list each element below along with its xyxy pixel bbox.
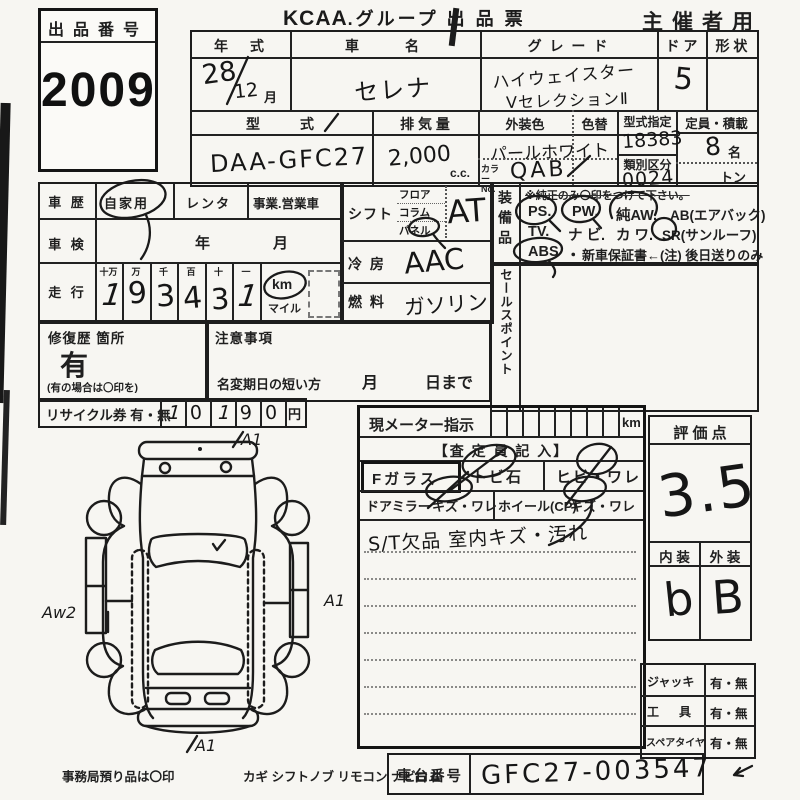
equipment-item-ps: PS. xyxy=(528,204,551,220)
row1-vline xyxy=(543,461,545,490)
history-option-commercial: 事業.営業車 xyxy=(253,193,319,212)
sliding-door-right xyxy=(248,550,264,708)
spare-tire-value: 有・無 xyxy=(710,733,748,752)
scan-edge-artifact-left xyxy=(0,103,11,403)
exterior-label: 外 装 xyxy=(700,546,750,566)
front-washer-right xyxy=(221,462,231,472)
mileage-unit-km: km xyxy=(272,276,292,292)
meter-box: 現メーター指示 km 【査 定 員 記 入】 Fガラス トビ石 ヒビ・ワレ ドア… xyxy=(357,405,646,749)
left-fender-outline xyxy=(103,478,144,714)
stone-chip-label: トビ石 xyxy=(472,466,523,487)
door-label: ド ア xyxy=(657,36,706,56)
interior-value: b xyxy=(661,571,696,628)
capacity-divider xyxy=(676,162,757,164)
mileage-digit: 9 xyxy=(127,275,148,311)
type-designation-value: 18383 xyxy=(621,127,683,153)
row1-bottom xyxy=(360,490,643,492)
controls-box: シフト フロア コラム パネル AT 冷 房 AAC 燃 料 ガソリン xyxy=(340,182,494,324)
lot-number-label: 出品番号 xyxy=(41,16,155,40)
crack-label: ヒビ・ワレ xyxy=(556,466,641,487)
tools-label: 工 具 xyxy=(647,703,695,720)
taillight-left xyxy=(166,693,190,704)
color-no-value: QAB xyxy=(509,157,567,185)
meter-unit: km xyxy=(622,415,641,430)
lt-row-divider xyxy=(40,262,342,264)
diagram-annotation-top: A1 xyxy=(240,430,262,449)
history-option-rental: レンタ xyxy=(186,193,231,212)
controls-divider xyxy=(342,282,492,284)
rating-value: 3.5 xyxy=(654,450,761,531)
accessories-box: ジャッキ 有・無 工 具 有・無 スペアタイヤ 有・無 xyxy=(640,663,756,759)
right-fender-outline xyxy=(252,478,293,714)
note-dotline xyxy=(364,551,636,553)
wheel-label: ホイール(CP) xyxy=(498,496,577,515)
shift-value: AT xyxy=(446,191,488,232)
shift-option-panel: パネル xyxy=(397,222,445,239)
auction-sheet: 出品番号 2009 KCAA.グループ 出 品 票 主催者用 年 式 車 名 グ… xyxy=(0,0,800,800)
name-label: 車 名 xyxy=(290,36,480,56)
hand-dot-top xyxy=(198,447,202,451)
repair-note: (有の場合は〇印を) xyxy=(47,380,138,395)
history-mileage-table: 車 歴 自家用 レンタ 事業.営業車 車 検 年 月 走 行 十万 万 千 百 … xyxy=(38,182,344,324)
lt-vline xyxy=(95,184,97,322)
displacement-unit: c.c. xyxy=(450,166,470,180)
meter-cell xyxy=(538,408,540,436)
equipment-item-tv: TV. xyxy=(528,224,549,240)
rename-day-label: 日まで xyxy=(425,369,473,393)
inspection-year-label: 年 xyxy=(195,232,210,253)
aircon-label: 冷 房 xyxy=(348,254,386,274)
year-month-value: 12 xyxy=(233,79,259,103)
mirror-scratch-label: キズ・ワレ xyxy=(432,496,497,515)
lt-row-divider xyxy=(40,218,342,220)
jack-value: 有・無 xyxy=(710,673,748,692)
lt-vline xyxy=(247,184,249,218)
sales-point-label: セールスポイント xyxy=(496,268,515,376)
model-value: DAA-GFC27 xyxy=(209,142,369,178)
mileage-digit: 1 xyxy=(232,279,262,314)
door-value: 5 xyxy=(672,61,695,98)
sheet-title: KCAA.グループ 出 品 票 xyxy=(283,5,526,31)
year-label: 年 式 xyxy=(192,36,290,56)
diagram-annotation-bottom: A1 xyxy=(194,736,216,755)
rating-box: 評 価 点 3.5 内 装 外 装 b B xyxy=(648,415,752,641)
capacity-value: 8 xyxy=(704,131,722,161)
mileage-place-100k: 十万 xyxy=(95,265,122,278)
equipment-box: 装備品 ※純正のみ〇印をつけて下さい。 PS. PW. 純AW. AB(エアバッ… xyxy=(490,182,759,266)
rename-month-label: 月 xyxy=(362,369,378,393)
mileage-unit-mile: マイル xyxy=(268,300,301,316)
grade-line2: VセレクションⅡ xyxy=(506,85,630,113)
body-side-left xyxy=(140,476,153,718)
note-dotline xyxy=(364,578,636,580)
fglass-cell: Fガラス xyxy=(361,461,461,493)
mileage-label: 走 行 xyxy=(40,282,95,301)
sales-point-box: セールスポイント xyxy=(490,262,759,412)
fuel-label: 燃 料 xyxy=(348,292,386,312)
mileage-digit: 3 xyxy=(210,282,230,317)
sales-point-divider xyxy=(519,264,521,410)
repair-history-box: 修復歴 箇所 有 (有の場合は〇印を) xyxy=(38,320,209,402)
equipment-item-pw: PW. xyxy=(572,204,599,220)
equipment-label: 装備品 xyxy=(495,190,515,250)
note-dotline xyxy=(364,659,636,661)
meter-cell xyxy=(586,408,588,436)
equipment-item-leather: カ ワ. xyxy=(616,224,653,245)
meter-cell xyxy=(602,408,604,436)
taillight-right xyxy=(205,693,229,704)
shift-option-floor: フロア xyxy=(397,186,445,204)
equipment-item-aw: 純AW. xyxy=(616,204,657,225)
meter-cell xyxy=(570,408,572,436)
note-dotline xyxy=(364,632,636,634)
year-month-suffix: 月 xyxy=(264,87,277,106)
shift-label: シフト xyxy=(348,204,393,224)
table-row-divider xyxy=(192,110,757,112)
windshield xyxy=(149,534,247,567)
lt-vline xyxy=(173,184,175,218)
shift-options-cell: フロア コラム パネル xyxy=(397,186,447,238)
acc-row-line xyxy=(642,725,754,727)
note-dotline xyxy=(364,605,636,607)
meter-cell xyxy=(522,408,524,436)
rating-label: 評 価 点 xyxy=(650,422,750,443)
lot-number-value: 2009 xyxy=(41,63,155,118)
acc-row-line xyxy=(642,695,754,697)
color-change-label: 色替 xyxy=(572,114,617,133)
ext-color-label: 外装色 xyxy=(478,114,572,133)
rename-deadline-label: 名変期日の短い方 xyxy=(217,374,321,393)
equipment-item-sr: SR(サンルーフ) xyxy=(662,224,756,244)
history-label: 車 歴 xyxy=(40,192,95,211)
vehicle-table: 年 式 車 名 グ レ ー ド ド ア 形 状 28 12 月 セレナ ハイウェ… xyxy=(190,30,759,187)
meter-cell xyxy=(506,408,508,436)
mileage-spare-box xyxy=(308,270,340,318)
meter-label: 現メーター指示 xyxy=(369,414,474,435)
wheel-scratch-label: キズ・ワレ xyxy=(570,496,635,515)
note-dotline xyxy=(364,713,636,715)
rear-window xyxy=(152,642,244,674)
grade-label: グ レ ー ド xyxy=(480,36,657,56)
body-side-right xyxy=(243,476,256,718)
lot-header-divider xyxy=(41,41,155,43)
sheet-title-brand: KCAA xyxy=(283,7,348,30)
note-dotline xyxy=(364,686,636,688)
capacity-label: 定員・積載 xyxy=(676,113,757,132)
mileage-digit: 3 xyxy=(155,279,176,315)
mileage-place-1: 一 xyxy=(232,265,260,278)
fuel-value: ガソリン xyxy=(403,286,489,322)
row2-bottom xyxy=(360,519,643,521)
wheel-front-right xyxy=(275,501,309,535)
exterior-value: B xyxy=(710,569,745,625)
diagram-annotation-left: Aw2 xyxy=(41,603,76,622)
meter-header-divider xyxy=(360,436,643,438)
inspection-month-label: 月 xyxy=(273,232,288,253)
front-bumper xyxy=(139,442,257,459)
lt-vline xyxy=(260,262,262,322)
assessor-label: 【査 定 員 記 入】 xyxy=(360,441,643,461)
caution-box: 注意事項 名変期日の短い方 月 日まで xyxy=(205,320,491,402)
mileage-place-1k: 千 xyxy=(150,265,177,278)
fglass-label: Fガラス xyxy=(372,468,438,489)
interior-label: 内 装 xyxy=(650,546,699,566)
mileage-digit: 4 xyxy=(182,280,204,317)
chassis-arrow xyxy=(734,766,752,776)
equipment-note: ※純正のみ〇印をつけて下さい。 xyxy=(525,187,690,203)
repair-value: 有 xyxy=(60,344,88,384)
displacement-value: 2,000 xyxy=(387,141,452,171)
meter-cell xyxy=(618,408,620,436)
equipment-label-divider xyxy=(519,184,521,264)
equipment-item-ab: AB(エアバック) xyxy=(670,204,765,224)
inspection-checkmark xyxy=(213,540,225,550)
equipment-item-abs: ABS xyxy=(528,244,559,260)
name-value: セレナ xyxy=(353,67,433,107)
meter-cell xyxy=(490,408,492,436)
deposit-items: カギ シフトノブ リモコン ナビロム xyxy=(243,766,441,785)
capacity-unit: 名 xyxy=(728,142,741,161)
rating-sub-line xyxy=(650,565,750,567)
rear-bumper xyxy=(138,709,258,726)
equipment-item-navi: ナ ビ. xyxy=(568,224,605,245)
diagram-annotation-right: A1 xyxy=(323,591,345,610)
lot-number-box: 出品番号 2009 xyxy=(38,8,158,172)
row2-vline xyxy=(493,490,495,519)
sheet-title-rest: .グループ 出 品 票 xyxy=(348,9,526,29)
wheel-front-left xyxy=(87,501,121,535)
meter-cell xyxy=(554,408,556,436)
tools-value: 有・無 xyxy=(710,703,748,722)
sliding-door-left xyxy=(132,550,148,708)
shift-option-column: コラム xyxy=(397,204,445,222)
door-mirror-label: ドアミラー xyxy=(366,496,431,515)
front-cowl xyxy=(142,459,254,476)
controls-divider xyxy=(342,240,492,242)
shape-label: 形 状 xyxy=(706,36,757,56)
displacement-label: 排 気 量 xyxy=(372,114,478,134)
inspection-label: 車 検 xyxy=(40,234,95,253)
scan-edge-artifact-left2 xyxy=(0,390,10,525)
car-diagram: A1 A1 Aw2 A1 xyxy=(40,420,360,755)
front-washer-left xyxy=(160,463,170,473)
mileage-place-10: 十 xyxy=(205,265,232,278)
mileage-place-100: 百 xyxy=(177,265,205,278)
table-header-underline-1 xyxy=(192,57,757,59)
spare-tire-label: スペアタイヤ xyxy=(646,734,705,749)
rating-header-line xyxy=(650,443,750,445)
model-label: 型 式 xyxy=(192,114,372,134)
chassis-value: GFC27-003547 xyxy=(481,753,713,791)
caution-label: 注意事項 xyxy=(215,327,273,347)
deposit-note: 事務局預り品は〇印 xyxy=(62,766,175,785)
jack-label: ジャッキ xyxy=(647,673,694,690)
history-option-private: 自家用 xyxy=(104,193,149,212)
aircon-value: AAC xyxy=(403,241,466,280)
chassis-divider xyxy=(469,755,471,793)
